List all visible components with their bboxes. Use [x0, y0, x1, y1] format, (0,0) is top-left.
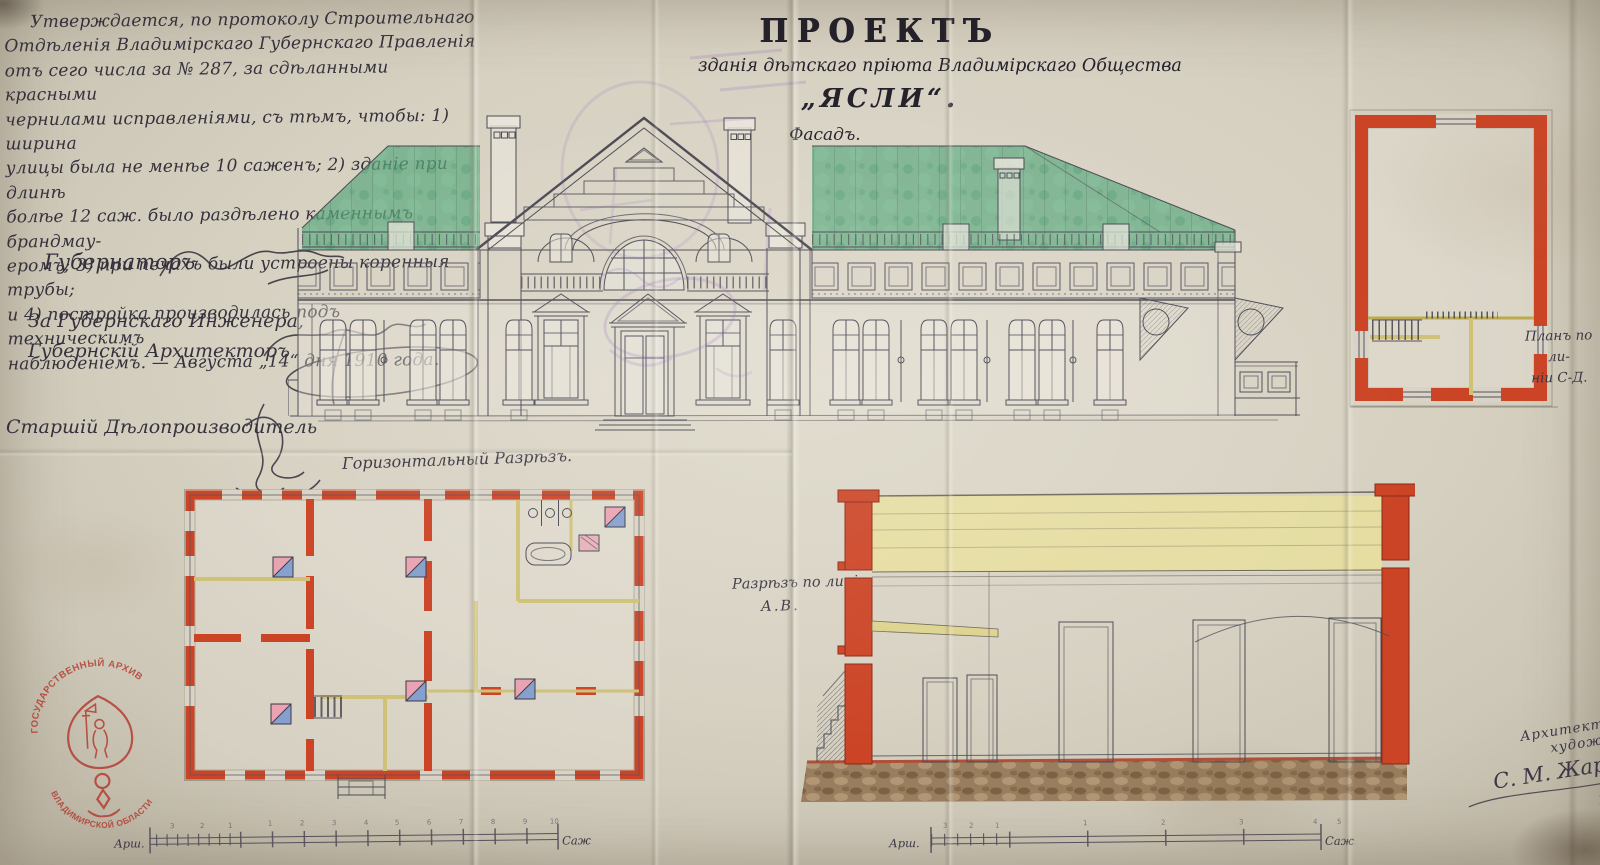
section-interior	[872, 572, 1389, 762]
scale-bar-left-rails	[150, 824, 558, 854]
scale-bar-right-numbers: 3 2 1 1 2 3 4 5	[943, 818, 1342, 830]
svg-text:3: 3	[332, 819, 337, 827]
svg-text:10: 10	[550, 818, 559, 826]
scale-bar-right-arshin-label: Арш.	[888, 836, 920, 850]
side-plan-label: Планъ по ли- ніи С-Д.	[1515, 325, 1600, 389]
floor-plan-outer-walls	[185, 490, 645, 781]
floor-plan-label: Горизонтальный Разрѣзъ.	[342, 446, 573, 473]
section-staircase	[817, 671, 845, 762]
facade-lunette-window	[600, 236, 688, 290]
svg-text:5: 5	[395, 819, 400, 827]
credit-block: Архитекторъ-художникъ С. М. Жаровъ 1910 …	[1434, 711, 1600, 831]
side-plan-label-line1: Планъ по ли-	[1515, 325, 1600, 368]
stamp-emblem	[66, 694, 136, 818]
facade-elevation-drawing	[288, 110, 1302, 432]
floor-plan-drawing	[181, 481, 655, 821]
archive-stamp: ГОСУДАРСТВЕННЫЙ АРХИВ ВЛАДИМИРСКОЙ ОБЛАС…	[21, 636, 181, 834]
svg-text:2: 2	[1161, 819, 1166, 827]
svg-text:3: 3	[1239, 818, 1244, 826]
scale-bar-right-sazhen-label: Саж.	[1325, 834, 1355, 848]
section-attic	[872, 492, 1382, 577]
scale-bar-left-numbers: 3 2 1 1 2 3 4 5 6 7 8 9 10	[170, 818, 559, 831]
svg-text:2: 2	[200, 822, 205, 830]
svg-text:4: 4	[364, 819, 369, 827]
cross-section-drawing	[793, 466, 1415, 818]
svg-text:4: 4	[1313, 818, 1318, 826]
facade-pediment	[476, 118, 812, 250]
approval-line: Отдѣленія Владимірскаго Губернскаго Прав…	[4, 30, 476, 59]
svg-text:6: 6	[427, 818, 432, 826]
architectural-drawing-sheet: Утверждается, по протоколу Строительнаго…	[0, 0, 1600, 865]
side-plan-label-line2: ніи С-Д.	[1516, 367, 1600, 389]
project-subtitle: зданія дѣтскаго пріюта Владимірскаго Общ…	[698, 56, 1062, 76]
svg-text:7: 7	[459, 818, 464, 826]
approval-line: отъ сего числа за № 287, за сдѣланными к…	[5, 54, 477, 108]
svg-text:9: 9	[523, 818, 528, 826]
svg-text:1: 1	[1083, 819, 1088, 827]
scale-bar-left: Арш. Саж. 3 2 1 1 2 3 4 5 6 7 8 9 10	[112, 810, 592, 861]
section-foundation	[801, 758, 1407, 802]
svg-text:1: 1	[268, 820, 273, 828]
svg-text:2: 2	[300, 819, 305, 827]
scale-bar-left-sazhen-label: Саж.	[562, 833, 592, 847]
svg-text:3: 3	[943, 822, 948, 830]
svg-text:3: 3	[170, 822, 175, 830]
svg-text:1: 1	[995, 822, 1000, 830]
floor-plan-porch	[338, 775, 385, 799]
svg-text:2: 2	[969, 822, 974, 830]
svg-text:1: 1	[228, 822, 233, 830]
scale-bar-left-arshin-label: Арш.	[113, 836, 145, 850]
svg-text:8: 8	[491, 818, 496, 826]
project-heading: ПРОЕКТЪ	[698, 13, 1062, 51]
scale-bar-right: Арш. Саж. 3 2 1 1 2 3 4 5	[885, 811, 1355, 861]
svg-text:5: 5	[1337, 818, 1342, 826]
scale-bar-right-rails	[931, 824, 1321, 853]
